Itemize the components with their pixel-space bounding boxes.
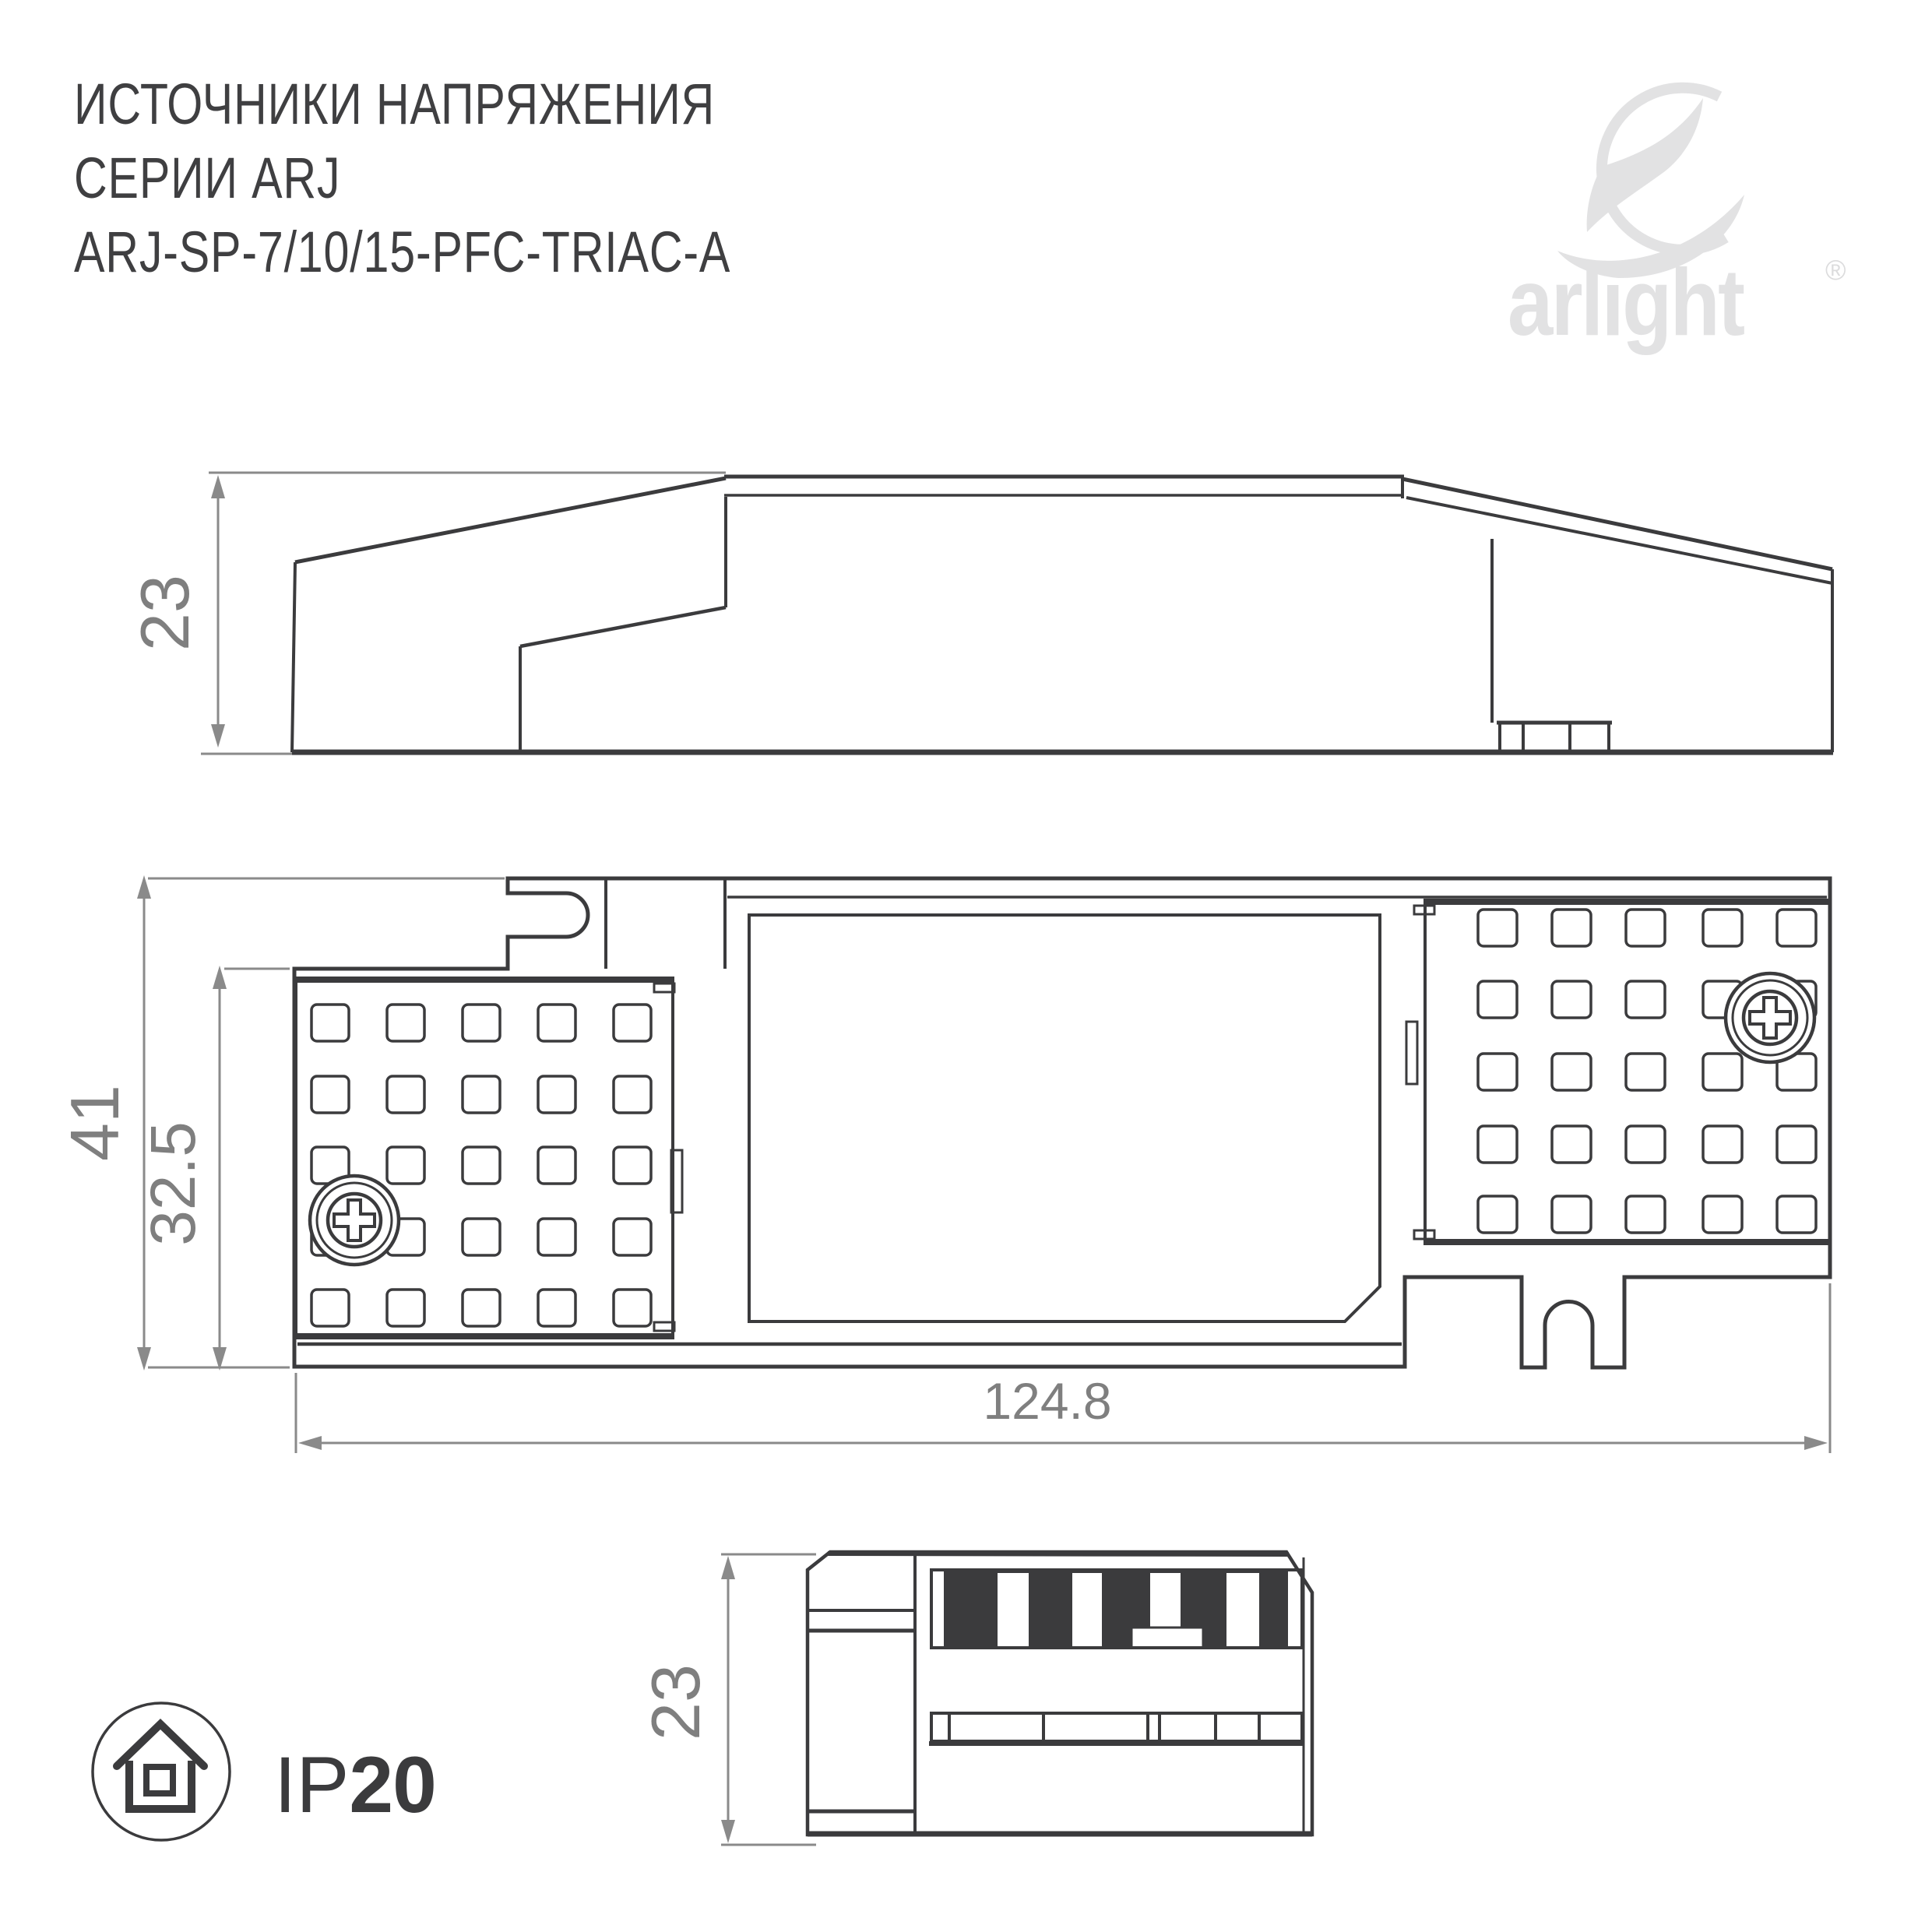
dimension-label-side-height: 23 — [126, 575, 203, 651]
screw-icon — [1726, 973, 1814, 1062]
terminal-block — [931, 1570, 1302, 1648]
house-icon — [93, 1703, 230, 1840]
arrowhead-icon — [721, 1556, 735, 1579]
screw-icon — [310, 1176, 399, 1265]
dimension-label-length: 124.8 — [983, 1372, 1111, 1430]
dimension-label-end-height: 23 — [637, 1664, 714, 1740]
end-view-drawing: 23 — [637, 1552, 1312, 1845]
side-view-drawing: 23 — [126, 473, 1833, 754]
arrowhead-icon — [1804, 1436, 1828, 1450]
dimension-label-body-height: 32.5 — [138, 1121, 209, 1246]
dimension-label-overall-height: 41 — [56, 1085, 133, 1161]
technical-drawing-canvas: 23 — [0, 0, 1932, 1932]
brand-swoosh-icon — [1557, 88, 1744, 278]
arrowhead-icon — [298, 1436, 322, 1450]
plan-view-drawing: 41 32.5 124.8 — [56, 875, 1830, 1453]
arrowhead-icon — [211, 724, 225, 748]
arrowhead-icon — [211, 475, 225, 498]
arrowhead-icon — [721, 1820, 735, 1843]
